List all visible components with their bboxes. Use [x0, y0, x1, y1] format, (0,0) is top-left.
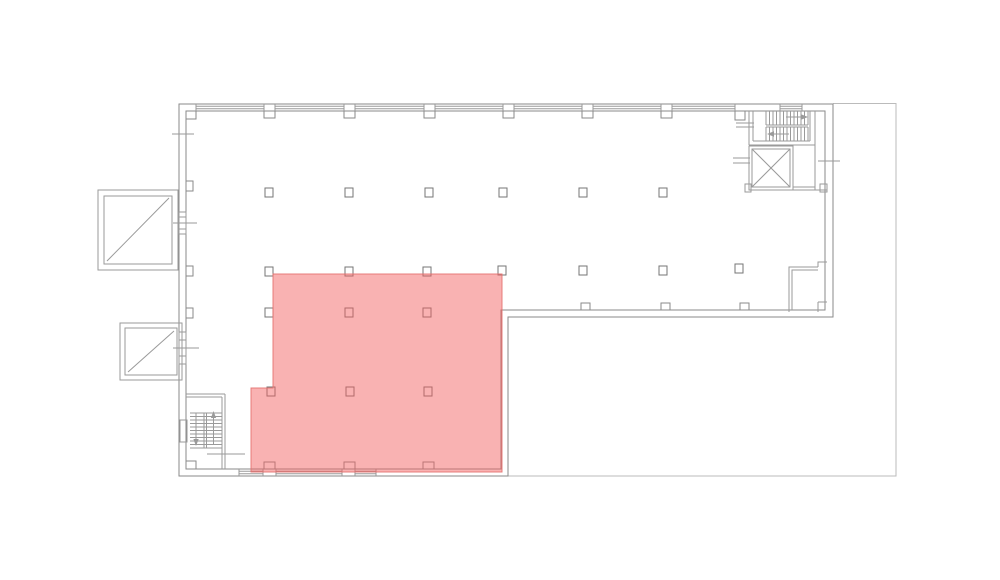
room-southeast-corner [789, 262, 827, 312]
shaft-diagonal [107, 198, 169, 261]
stair-southwest [180, 394, 245, 469]
arrow-left-icon [767, 131, 774, 136]
shaft-diagonal [128, 331, 174, 372]
door-swing-marks [207, 448, 245, 460]
door-marks [733, 123, 754, 163]
highlighted-zone[interactable] [251, 274, 502, 472]
wall-openings [172, 134, 840, 364]
arrow-up-icon [211, 411, 216, 418]
shaft-upper-west [98, 190, 178, 270]
elevator-shaft-northeast [749, 146, 793, 190]
floor-plan-canvas [0, 0, 1000, 580]
floor-plan-page [0, 0, 1000, 580]
stair-northeast [733, 111, 827, 192]
terrace-boundary [508, 104, 896, 477]
shaft-lower-west [120, 323, 182, 380]
